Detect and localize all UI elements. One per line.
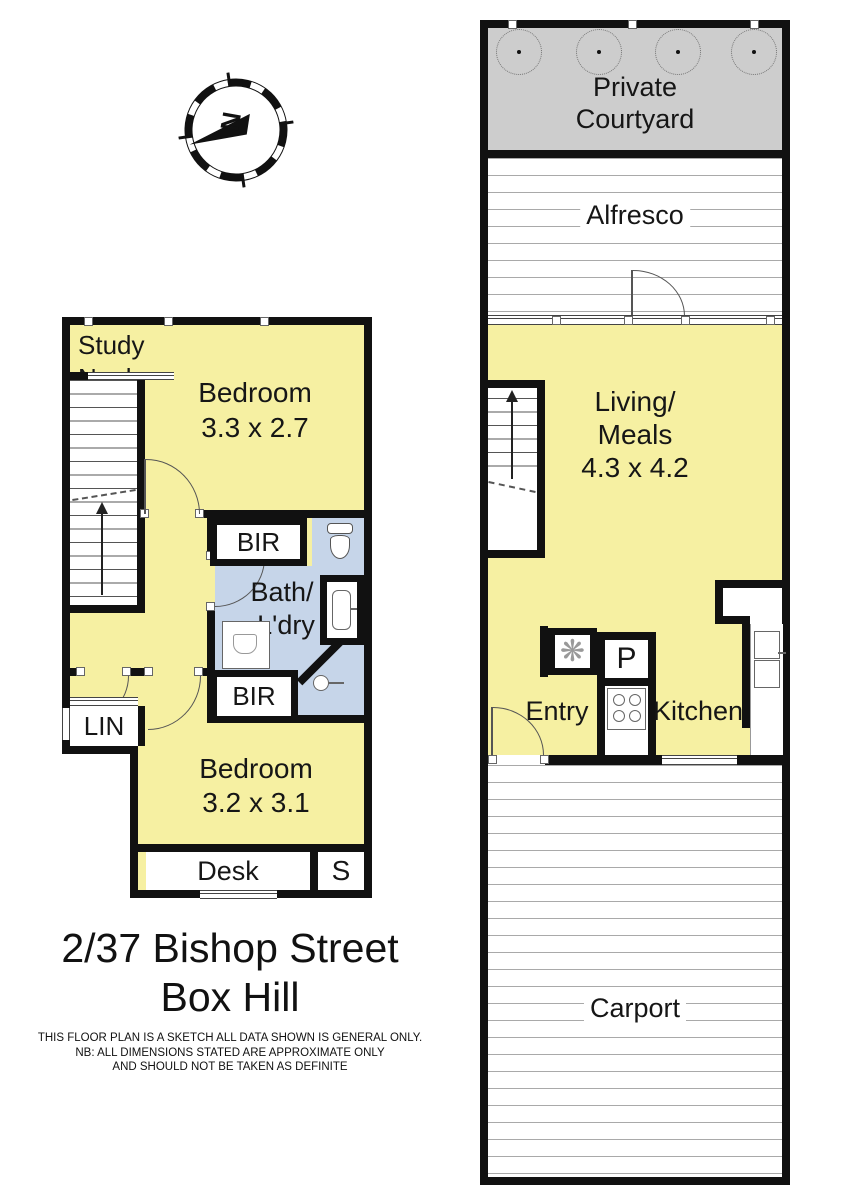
wall: [540, 626, 548, 677]
window-jamb: [508, 20, 517, 29]
disclaimer: THIS FLOOR PLAN IS A SKETCH ALL DATA SHO…: [18, 1031, 442, 1075]
wall: [200, 510, 364, 518]
door-jamb: [144, 667, 153, 676]
bath-label-line1: Bath/: [250, 577, 313, 608]
door-jamb: [122, 667, 131, 676]
cooktop: [607, 688, 646, 730]
wall: [488, 550, 545, 558]
store-area: S: [318, 852, 364, 890]
wall: [537, 380, 545, 558]
wall: [742, 616, 750, 728]
door-jamb: [194, 667, 203, 676]
burner-icon: [629, 710, 641, 722]
window-jamb: [628, 20, 637, 29]
stair-arrow-shaft: [511, 401, 513, 479]
floorplan-canvas: N Study Nook Bedroom 3.3 x 2.7: [0, 0, 848, 1200]
wall: [310, 852, 318, 890]
fridge-bottom-icon: [754, 660, 780, 688]
vanity: [320, 575, 364, 645]
bedroom2-dims: 3.2 x 3.1: [202, 787, 309, 819]
study-nook-line1: Study: [78, 329, 145, 362]
built-in-robe-bottom: BIR: [210, 670, 298, 723]
compass: N: [170, 64, 301, 195]
ground-floor-plan: Private Courtyard Alfresco Living/ Meals…: [480, 20, 790, 1185]
burner-icon: [613, 694, 625, 706]
courtyard-label-line1: Private: [593, 72, 677, 103]
bedroom1-dims: 3.3 x 2.7: [201, 412, 308, 444]
address-line1: 2/37 Bishop Street: [18, 924, 442, 973]
wall: [70, 605, 145, 613]
compass-rose-icon: N: [170, 64, 301, 195]
wall: [488, 150, 782, 158]
living-label-line1: Living/: [595, 386, 676, 418]
wall: [715, 580, 782, 588]
burner-icon: [629, 694, 641, 706]
washing-machine: [222, 621, 270, 669]
window-jamb: [164, 317, 173, 326]
door-jamb: [540, 755, 549, 764]
wall: [138, 844, 364, 852]
pantry: P: [605, 640, 648, 678]
window-jamb: [260, 317, 269, 326]
carport: Carport: [488, 765, 782, 1177]
courtyard-label-line2: Courtyard: [576, 104, 695, 135]
living-dims: 4.3 x 4.2: [581, 452, 688, 484]
door-jamb: [681, 316, 690, 325]
toilet-icon: [327, 523, 353, 534]
wall: [597, 632, 656, 640]
appliance-unit: ❋: [548, 628, 597, 675]
tree-icon: [576, 29, 622, 75]
laundry-basket-icon: [233, 634, 257, 654]
kitchen-label: Kitchen: [653, 696, 743, 727]
window-jamb: [766, 316, 775, 325]
door-jamb: [206, 602, 215, 611]
window: [88, 372, 174, 380]
tree-icon: [496, 29, 542, 75]
tap-icon: [351, 608, 357, 610]
wall: [648, 632, 656, 755]
tree-icon: [655, 29, 701, 75]
window-jamb: [84, 317, 93, 326]
alfresco-label: Alfresco: [580, 200, 690, 231]
upper-floor-plan: Study Nook Bedroom 3.3 x 2.7: [62, 317, 372, 898]
bedroom2-label: Bedroom: [199, 753, 313, 785]
window: [62, 708, 70, 740]
door-jamb: [624, 316, 633, 325]
window-jamb: [750, 20, 759, 29]
linen-closet: LIN: [70, 706, 145, 746]
stair-treads: [70, 380, 137, 605]
entry-label: Entry: [525, 696, 588, 727]
building-notch: [62, 746, 138, 898]
sliding-door-window: [488, 315, 782, 325]
door-jamb: [488, 755, 497, 764]
shower-arm-icon: [328, 682, 344, 684]
shower-rose-icon: [313, 675, 329, 691]
disclaimer-line1: THIS FLOOR PLAN IS A SKETCH ALL DATA SHO…: [18, 1031, 442, 1046]
built-in-robe-top: BIR: [210, 518, 307, 566]
stairs-upper: [70, 372, 145, 613]
bedroom1-label: Bedroom: [198, 377, 312, 409]
fan-icon: ❋: [560, 637, 585, 667]
disclaimer-line2: NB: ALL DIMENSIONS STATED ARE APPROXIMAT…: [18, 1046, 442, 1061]
stair-arrow-shaft: [101, 513, 103, 595]
fridge-top-icon: [754, 631, 780, 659]
sink-icon: [332, 590, 351, 630]
window: [200, 890, 277, 899]
window: [662, 755, 737, 765]
private-courtyard: Private Courtyard: [488, 28, 782, 150]
burner-icon: [613, 710, 625, 722]
address-line2: Box Hill: [18, 973, 442, 1022]
desk-area: Desk: [146, 852, 310, 890]
window: [70, 697, 138, 706]
wall: [597, 678, 656, 686]
wall: [597, 632, 605, 755]
disclaimer-line3: AND SHOULD NOT BE TAKEN AS DEFINITE: [18, 1060, 442, 1075]
door-swing-bedroom2: [148, 676, 201, 730]
stove-bench: [605, 686, 648, 755]
door-swing: [146, 459, 200, 514]
window-jamb: [552, 316, 561, 325]
tree-icon: [731, 29, 777, 75]
door-jamb: [76, 667, 85, 676]
living-label-line2: Meals: [598, 419, 673, 451]
stairs-ground: [488, 380, 545, 558]
fridge-handle-icon: [778, 652, 786, 654]
address-block: 2/37 Bishop Street Box Hill THIS FLOOR P…: [18, 924, 442, 1075]
carport-label: Carport: [584, 993, 686, 1024]
